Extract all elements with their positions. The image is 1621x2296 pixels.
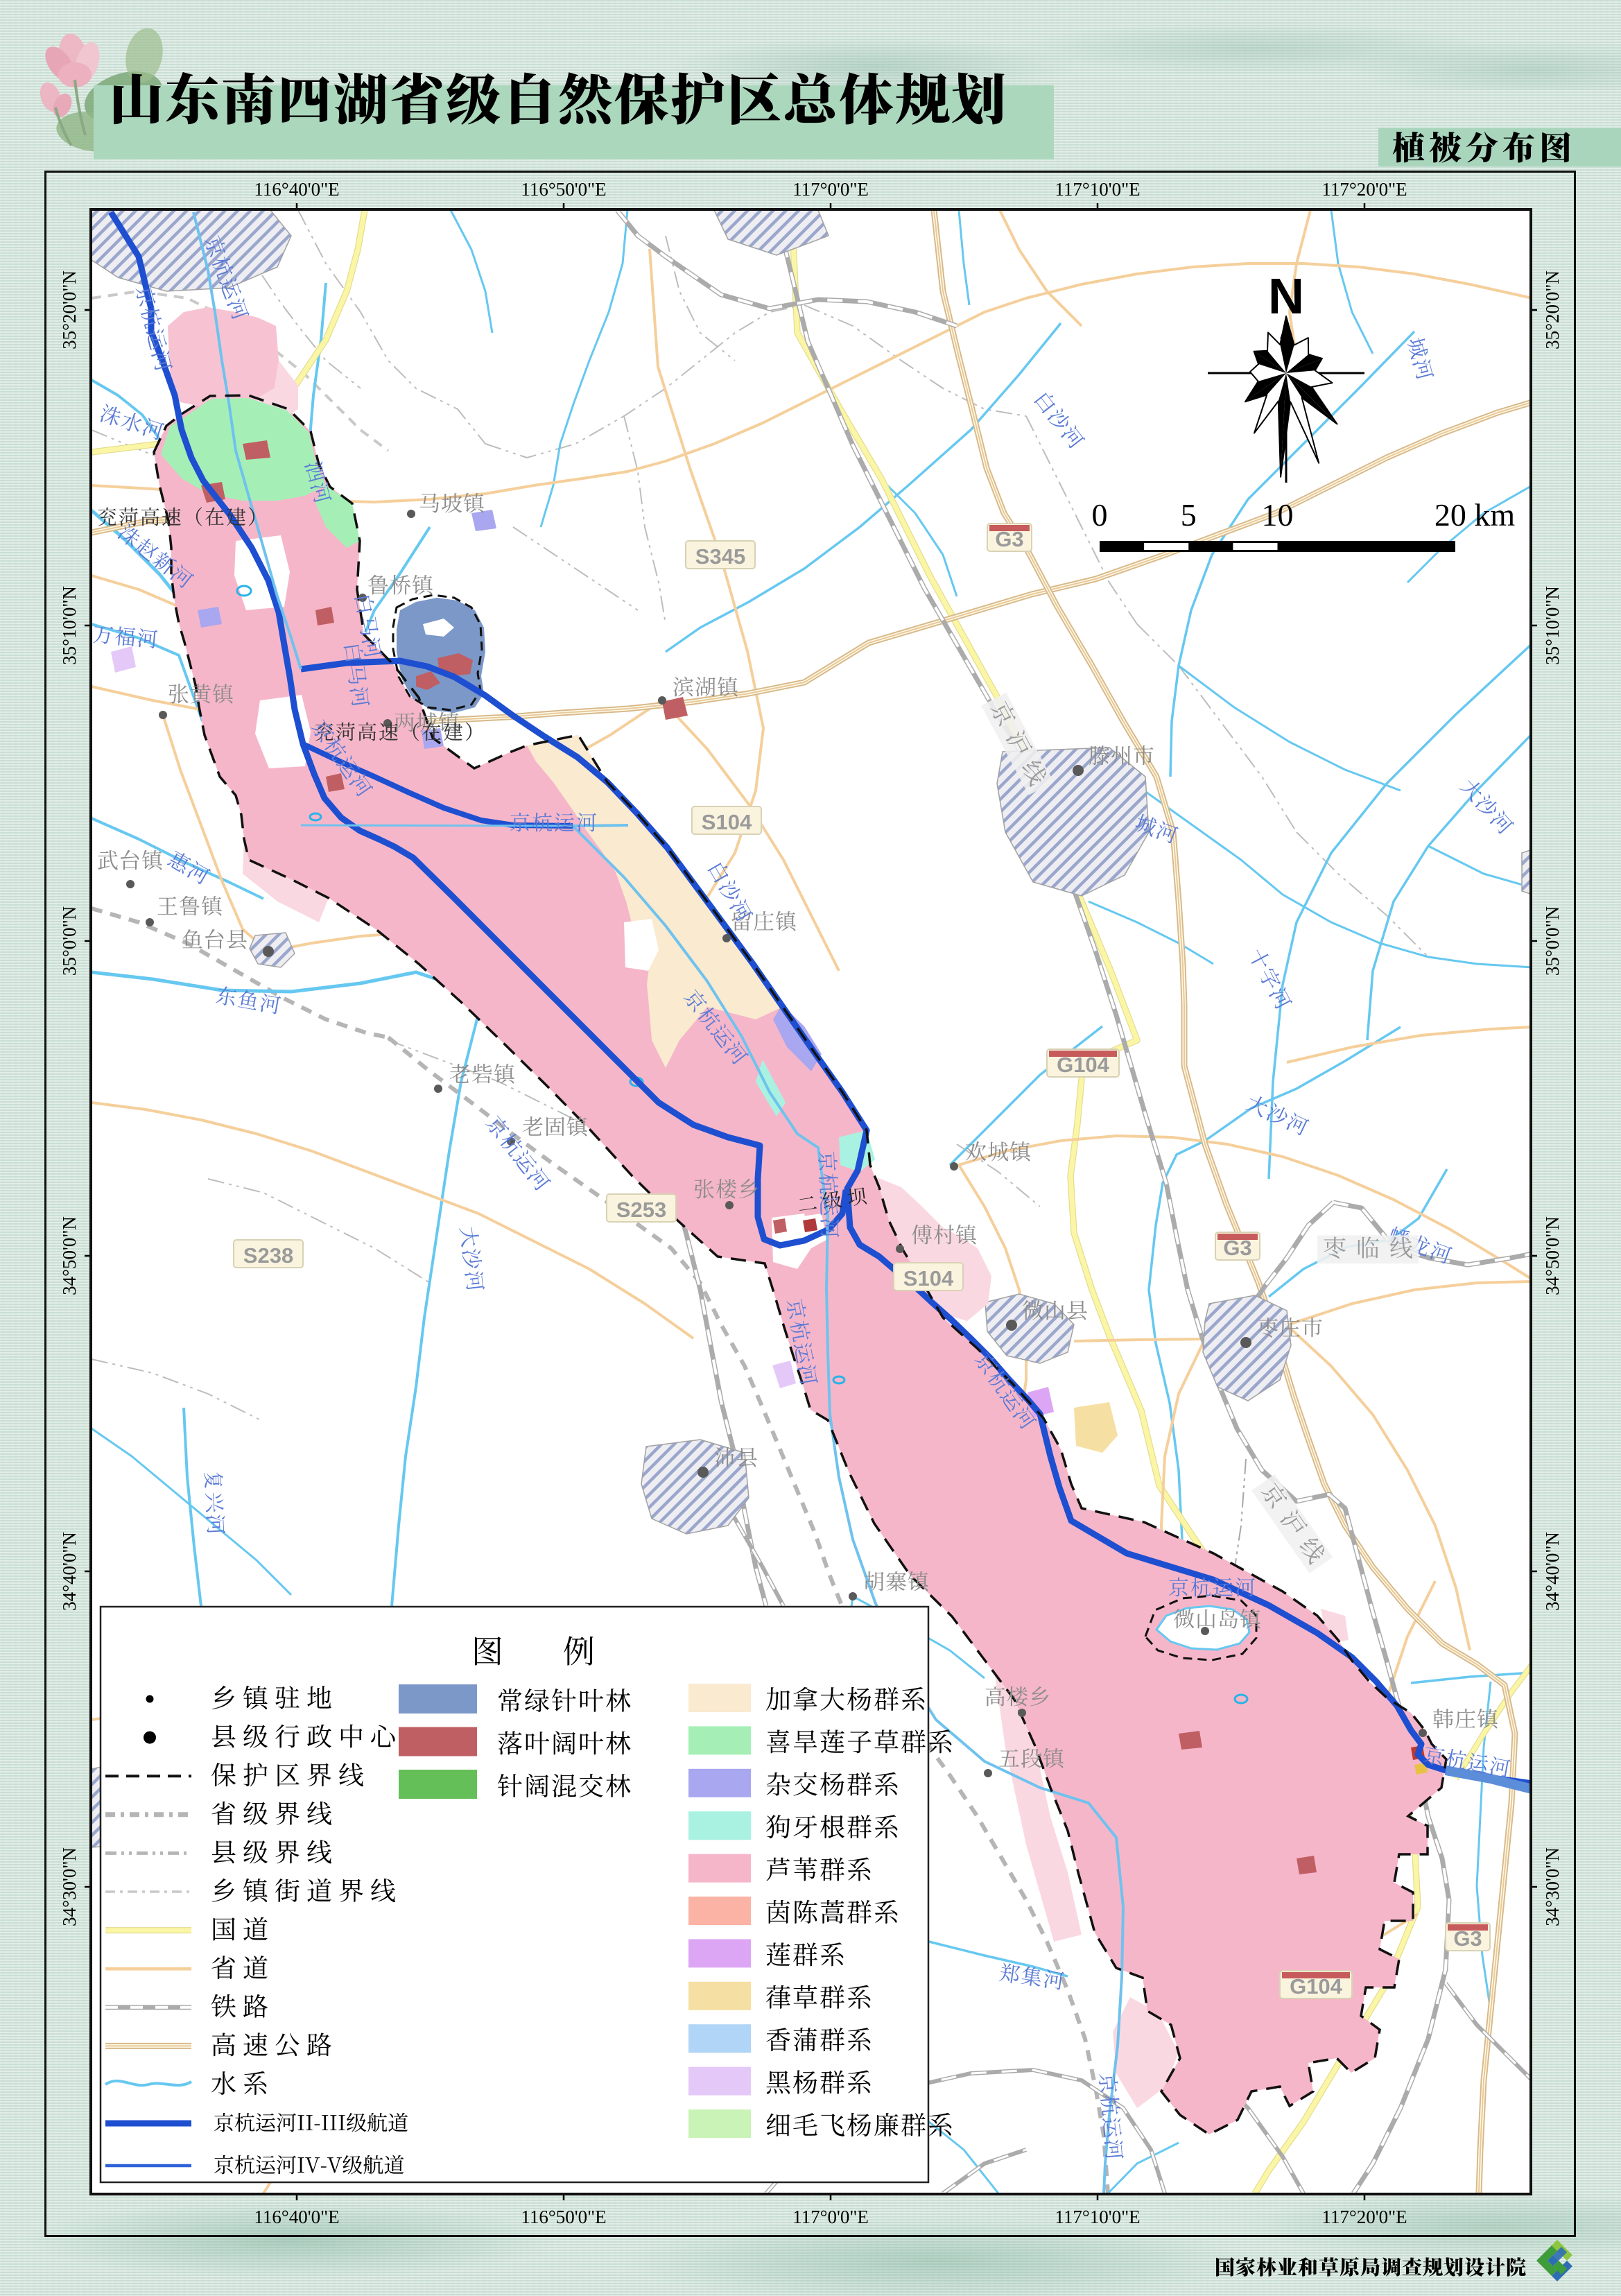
svg-text:34°30'0"N: 34°30'0"N (59, 1847, 80, 1926)
svg-text:34°40'0"N: 34°40'0"N (1542, 1532, 1563, 1611)
svg-text:S104: S104 (702, 810, 752, 834)
svg-text:35°0'0"N: 35°0'0"N (1542, 906, 1563, 976)
svg-text:35°10'0"N: 35°10'0"N (1542, 586, 1563, 665)
svg-text:G104: G104 (1290, 1974, 1343, 1999)
svg-text:5: 5 (1181, 497, 1197, 533)
svg-text:G3: G3 (995, 527, 1023, 551)
svg-text:S238: S238 (243, 1243, 293, 1268)
svg-text:34°30'0"N: 34°30'0"N (1542, 1847, 1563, 1926)
svg-text:S253: S253 (616, 1198, 666, 1222)
svg-text:35°20'0"N: 35°20'0"N (1542, 270, 1563, 349)
svg-text:35°0'0"N: 35°0'0"N (59, 906, 80, 976)
svg-text:G3: G3 (1223, 1236, 1251, 1260)
svg-text:35°20'0"N: 35°20'0"N (59, 270, 80, 349)
svg-text:116°50'0"E: 116°50'0"E (521, 2207, 606, 2227)
svg-text:117°10'0"E: 117°10'0"E (1055, 2207, 1140, 2227)
svg-text:34°50'0"N: 34°50'0"N (1542, 1216, 1563, 1295)
svg-text:117°20'0"E: 117°20'0"E (1321, 179, 1407, 200)
svg-text:34°40'0"N: 34°40'0"N (59, 1532, 80, 1611)
svg-text:34°50'0"N: 34°50'0"N (59, 1216, 80, 1295)
svg-text:116°40'0"E: 116°40'0"E (254, 2207, 339, 2227)
svg-text:G3: G3 (1453, 1926, 1482, 1951)
svg-text:S345: S345 (695, 544, 745, 569)
svg-text:117°20'0"E: 117°20'0"E (1321, 2207, 1407, 2227)
svg-text:20 km: 20 km (1434, 497, 1516, 533)
svg-text:S104: S104 (903, 1266, 954, 1291)
svg-text:116°50'0"E: 116°50'0"E (521, 179, 606, 200)
svg-text:117°0'0"E: 117°0'0"E (792, 2207, 869, 2227)
svg-text:116°40'0"E: 116°40'0"E (254, 179, 339, 200)
svg-text:N: N (1268, 269, 1304, 325)
svg-text:0: 0 (1092, 497, 1108, 533)
svg-text:G104: G104 (1057, 1053, 1110, 1077)
svg-text:35°10'0"N: 35°10'0"N (59, 586, 80, 665)
svg-text:117°10'0"E: 117°10'0"E (1055, 179, 1140, 200)
svg-text:117°0'0"E: 117°0'0"E (792, 179, 869, 200)
svg-text:10: 10 (1262, 497, 1294, 533)
